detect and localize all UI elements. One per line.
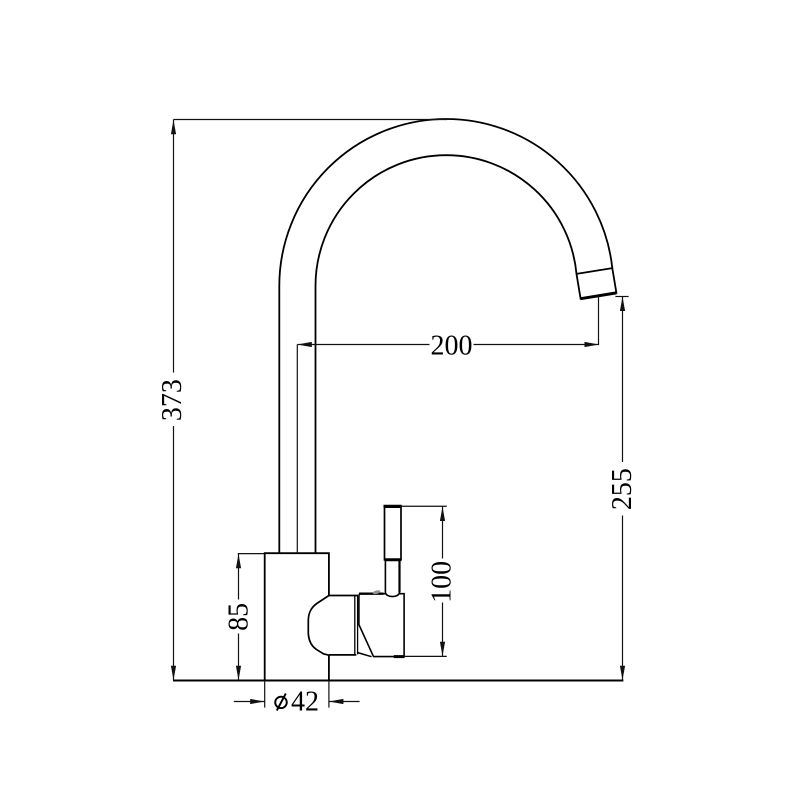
svg-text:42: 42 bbox=[291, 686, 319, 717]
svg-text:255: 255 bbox=[607, 468, 638, 510]
svg-text:85: 85 bbox=[223, 603, 254, 631]
svg-text:200: 200 bbox=[431, 330, 473, 361]
svg-text:100: 100 bbox=[426, 561, 457, 603]
svg-text:373: 373 bbox=[157, 379, 188, 421]
